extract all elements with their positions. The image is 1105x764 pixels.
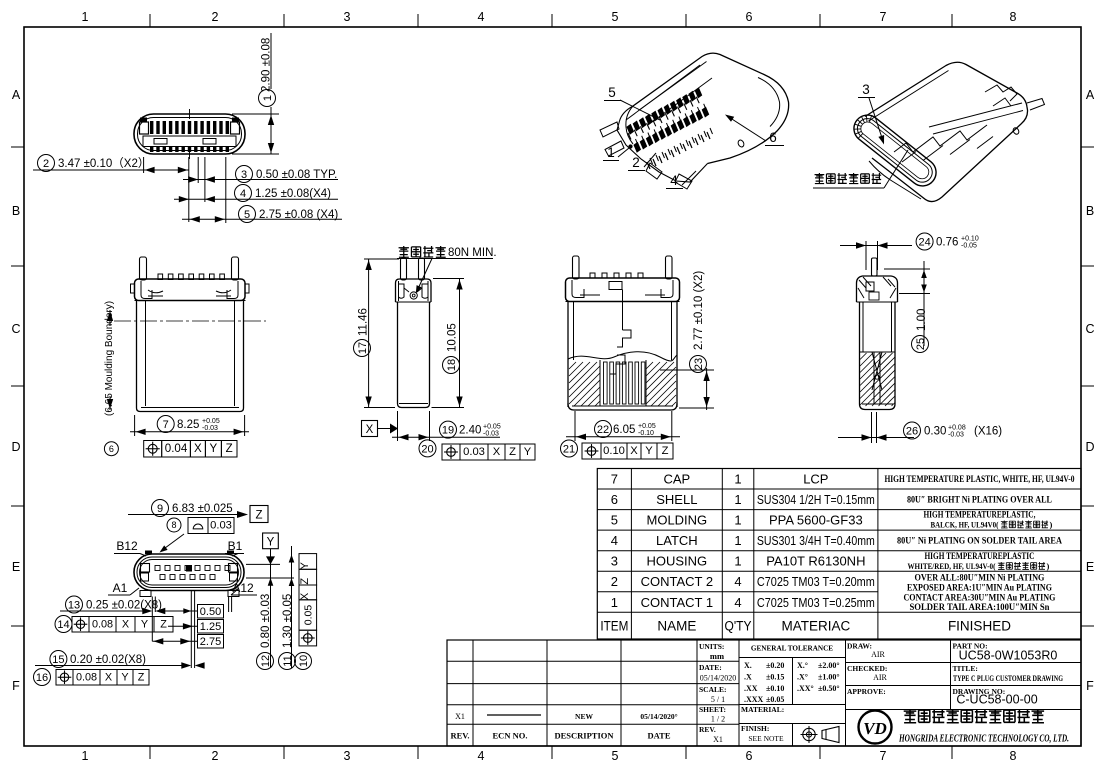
svg-text:2: 2 <box>611 574 618 589</box>
svg-text:Y: Y <box>267 536 275 548</box>
svg-text:±0.10: ±0.10 <box>766 684 784 693</box>
svg-text:UNITS:: UNITS: <box>699 642 724 651</box>
svg-text:X.: X. <box>744 661 752 670</box>
svg-text:C-UC58-00-00: C-UC58-00-00 <box>956 693 1037 707</box>
svg-text:2: 2 <box>212 10 219 24</box>
svg-text:C: C <box>11 322 20 336</box>
svg-text:21: 21 <box>563 443 575 455</box>
svg-text:0.30: 0.30 <box>924 426 946 438</box>
svg-text:1.25: 1.25 <box>200 621 221 633</box>
svg-text:1: 1 <box>611 595 618 610</box>
svg-text:D: D <box>11 440 20 454</box>
svg-text:1: 1 <box>262 95 274 101</box>
svg-text:Y: Y <box>141 618 148 630</box>
svg-text:80N MIN.: 80N MIN. <box>448 247 497 259</box>
svg-text:9: 9 <box>157 503 163 515</box>
svg-text:3: 3 <box>862 82 870 97</box>
svg-text:0.25 ±0.02(X8): 0.25 ±0.02(X8) <box>86 600 162 612</box>
svg-text:0.76: 0.76 <box>936 237 958 249</box>
svg-text:0.08: 0.08 <box>76 671 97 683</box>
svg-text:3: 3 <box>344 749 351 763</box>
svg-text:HIGH TEMPERATUREPLASTIC: HIGH TEMPERATUREPLASTIC <box>924 551 1034 561</box>
svg-text:HIGH TEMPERATUREPLASTIC,: HIGH TEMPERATUREPLASTIC, <box>923 510 1035 520</box>
svg-text:3: 3 <box>611 554 618 569</box>
svg-text:GENERAL TOLERANCE: GENERAL TOLERANCE <box>751 645 833 653</box>
svg-text:22: 22 <box>597 424 609 436</box>
svg-text:CHECKED:: CHECKED: <box>847 664 887 673</box>
svg-text:Y: Y <box>645 445 653 457</box>
svg-text:B1: B1 <box>228 539 243 553</box>
svg-text:10: 10 <box>298 655 310 667</box>
svg-text:mm: mm <box>710 651 724 661</box>
svg-text:ITEM: ITEM <box>600 619 628 634</box>
svg-text:4: 4 <box>478 749 485 763</box>
svg-text:Y: Y <box>121 671 128 683</box>
svg-text:8: 8 <box>1010 749 1017 763</box>
svg-text:Y: Y <box>299 561 311 569</box>
svg-text:SEE NOTE: SEE NOTE <box>748 734 784 743</box>
svg-text:05/14/2020°: 05/14/2020° <box>640 712 677 721</box>
svg-text:7: 7 <box>611 471 618 486</box>
svg-text:HONGRIDA ELECTRONIC TECHNOLOGY: HONGRIDA ELECTRONIC TECHNOLOGY CO, LTD. <box>898 734 1069 745</box>
svg-text:-0.10: -0.10 <box>638 430 654 437</box>
svg-text:HOUSING: HOUSING <box>647 554 708 569</box>
svg-text:Z: Z <box>255 510 262 522</box>
svg-text:BALCK, HF, UL94V0(: BALCK, HF, UL94V0( <box>930 520 998 530</box>
svg-text:F: F <box>1086 679 1094 693</box>
svg-text:DESCRIPTION: DESCRIPTION <box>554 731 614 741</box>
svg-text:8: 8 <box>1010 10 1017 24</box>
svg-text:24: 24 <box>918 236 930 248</box>
svg-text:HIGH TEMPERATURE PLASTIC, WHIT: HIGH TEMPERATURE PLASTIC, WHITE, HF, UL9… <box>884 474 1074 484</box>
svg-text:X: X <box>105 671 112 683</box>
svg-text:NEW: NEW <box>575 712 593 721</box>
svg-text:SCALE:: SCALE: <box>699 685 727 694</box>
svg-text:X: X <box>493 446 501 458</box>
svg-text:±1.00°: ±1.00° <box>818 673 840 682</box>
svg-text:8.25: 8.25 <box>177 419 199 431</box>
svg-text:5: 5 <box>612 749 619 763</box>
svg-text:0.05: 0.05 <box>303 605 315 626</box>
svg-text:19: 19 <box>442 424 454 436</box>
svg-text:SOLDER TAIL AREA:100U″MIN Sn: SOLDER TAIL AREA:100U″MIN Sn <box>909 602 1049 612</box>
svg-text:0.03: 0.03 <box>463 446 485 458</box>
svg-text:+0.08: +0.08 <box>948 424 966 431</box>
svg-text:Y: Y <box>210 443 218 455</box>
svg-text:.XX°: .XX° <box>797 684 814 693</box>
svg-text:X: X <box>366 424 374 436</box>
svg-text:1: 1 <box>607 145 615 160</box>
svg-text:E: E <box>12 560 20 574</box>
svg-text:1: 1 <box>734 533 741 548</box>
svg-text:F: F <box>12 679 20 693</box>
svg-text:.X°: .X° <box>797 673 808 682</box>
svg-text:A12: A12 <box>232 581 254 595</box>
svg-text:SUS304 1/2H T=0.15mm: SUS304 1/2H T=0.15mm <box>757 492 875 507</box>
svg-text:1: 1 <box>734 471 741 486</box>
svg-text:±0.15: ±0.15 <box>766 673 784 682</box>
svg-text:AIR: AIR <box>871 650 885 659</box>
svg-text:4: 4 <box>478 10 485 24</box>
svg-text:WHITE/RED, HF, UL94V-0(: WHITE/RED, HF, UL94V-0( <box>907 561 995 571</box>
svg-text:0.20 ±0.02(X8): 0.20 ±0.02(X8) <box>70 654 146 666</box>
svg-text:1 / 2: 1 / 2 <box>711 715 725 724</box>
svg-text:4: 4 <box>670 173 678 188</box>
svg-text:+0.05: +0.05 <box>638 423 656 430</box>
svg-text:5: 5 <box>612 10 619 24</box>
svg-text:11: 11 <box>282 655 294 666</box>
svg-text:UC58-0W1053R0: UC58-0W1053R0 <box>959 649 1058 663</box>
svg-text:E: E <box>1086 560 1094 574</box>
svg-text:C: C <box>1085 322 1094 336</box>
svg-text:TYPE C PLUG CUSTOMER DRAWING: TYPE C PLUG CUSTOMER DRAWING <box>953 674 1063 683</box>
svg-text:DRAW:: DRAW: <box>847 642 872 651</box>
svg-text:LCP: LCP <box>803 471 828 486</box>
svg-text:12: 12 <box>260 655 272 667</box>
svg-text:7: 7 <box>163 419 169 431</box>
svg-text:CONTACT AREA:30U″MIN Au PLATI: CONTACT AREA:30U″MIN Au PLATING <box>903 593 1055 603</box>
svg-text:17: 17 <box>357 342 369 354</box>
svg-text:1: 1 <box>82 749 89 763</box>
svg-text:MATERIAL:: MATERIAL: <box>741 705 784 714</box>
svg-text:SHEET:: SHEET: <box>699 705 726 714</box>
svg-text:16: 16 <box>36 672 48 684</box>
svg-text:CAP: CAP <box>663 471 690 486</box>
svg-text:1.30 ±0.05: 1.30 ±0.05 <box>282 594 294 648</box>
svg-text:0.04: 0.04 <box>165 443 188 455</box>
svg-text:Z: Z <box>509 446 516 458</box>
svg-text:A: A <box>1086 88 1095 102</box>
svg-text:.XX: .XX <box>744 684 758 693</box>
svg-text:VD: VD <box>863 719 887 738</box>
svg-text:SUS301 3/4H T=0.40mm: SUS301 3/4H T=0.40mm <box>757 533 875 548</box>
svg-text:7: 7 <box>880 10 887 24</box>
svg-text:0.50: 0.50 <box>200 606 221 618</box>
svg-text:B: B <box>1086 204 1094 218</box>
svg-text:13: 13 <box>68 599 80 611</box>
svg-text:TITLE:: TITLE: <box>953 664 978 673</box>
svg-text:C7025 TM03 T=0.20mm: C7025 TM03 T=0.20mm <box>757 574 875 589</box>
svg-text:5: 5 <box>611 513 618 528</box>
svg-text:1.00: 1.00 <box>916 309 928 331</box>
svg-text:Z: Z <box>138 671 145 683</box>
svg-text:6: 6 <box>109 444 114 454</box>
svg-text:05/14/2020: 05/14/2020 <box>700 674 736 683</box>
svg-text:80U″ Ni PLATING ON SOLDER TAIL: 80U″ Ni PLATING ON SOLDER TAIL AREA <box>897 536 1062 546</box>
svg-text:10.05: 10.05 <box>447 323 459 352</box>
svg-text:A: A <box>12 88 21 102</box>
svg-text:6: 6 <box>746 10 753 24</box>
svg-text:20: 20 <box>421 443 433 455</box>
svg-text:Q'TY: Q'TY <box>725 619 752 634</box>
svg-text:X1: X1 <box>713 735 723 744</box>
svg-text:±0.20: ±0.20 <box>766 661 784 670</box>
svg-text:1: 1 <box>82 10 89 24</box>
svg-text:): ) <box>1049 520 1052 530</box>
svg-text:18: 18 <box>446 359 458 371</box>
svg-text:DATE:: DATE: <box>699 663 722 672</box>
svg-text:MATERIAC: MATERIAC <box>781 619 850 634</box>
svg-text:PPA 5600-GF33: PPA 5600-GF33 <box>769 513 863 528</box>
svg-text:FINISHED: FINISHED <box>948 619 1011 634</box>
svg-text:1: 1 <box>734 492 741 507</box>
svg-text:1: 1 <box>734 513 741 528</box>
svg-text:LATCH: LATCH <box>656 533 698 548</box>
svg-text:X: X <box>122 618 129 630</box>
svg-text:X: X <box>194 443 202 455</box>
svg-text:MOLDING: MOLDING <box>647 513 708 528</box>
svg-text:2.90 ±0.08: 2.90 ±0.08 <box>261 38 273 92</box>
svg-text:ECN NO.: ECN NO. <box>493 731 528 741</box>
svg-text:2: 2 <box>632 155 640 170</box>
svg-text:(X16): (X16) <box>974 426 1002 438</box>
svg-text:6: 6 <box>769 130 777 145</box>
svg-text:.X: .X <box>744 673 752 682</box>
svg-text:DATE: DATE <box>648 731 671 741</box>
svg-text:Z: Z <box>299 578 311 585</box>
svg-text:): ) <box>1046 561 1049 571</box>
svg-text:D: D <box>1085 440 1094 454</box>
svg-text:Y: Y <box>524 446 532 458</box>
svg-text:REV.: REV. <box>451 731 470 741</box>
svg-text:B: B <box>12 204 20 218</box>
svg-text:2: 2 <box>212 749 219 763</box>
svg-text:APPROVE:: APPROVE: <box>847 687 886 696</box>
svg-text:0.08: 0.08 <box>92 618 113 630</box>
svg-text:4: 4 <box>734 574 741 589</box>
svg-text:5 / 1: 5 / 1 <box>711 695 725 704</box>
svg-text:2: 2 <box>43 158 49 170</box>
svg-text:3.47 ±0.10（X2）: 3.47 ±0.10（X2） <box>58 157 149 170</box>
svg-text:AIR: AIR <box>873 673 887 682</box>
svg-text:A1: A1 <box>113 581 128 595</box>
svg-text:1.25 ±0.08(X4): 1.25 ±0.08(X4) <box>255 188 331 200</box>
svg-text:0.80 ±0.03: 0.80 ±0.03 <box>260 594 272 648</box>
svg-text:4: 4 <box>734 595 741 610</box>
svg-text:80U″ BRIGHT Ni PLATING OVER AL: 80U″ BRIGHT Ni PLATING OVER ALL <box>907 495 1052 505</box>
svg-text:15: 15 <box>52 654 64 666</box>
svg-text:25: 25 <box>915 338 927 350</box>
svg-text:0.10: 0.10 <box>603 445 625 457</box>
svg-text:6: 6 <box>611 492 618 507</box>
svg-text:6.83 ±0.025: 6.83 ±0.025 <box>172 503 233 515</box>
svg-text:Z: Z <box>662 445 669 457</box>
svg-text:X.°: X.° <box>797 661 808 670</box>
svg-text:23: 23 <box>693 358 705 370</box>
svg-text:Z: Z <box>160 618 167 630</box>
svg-text:±0.50°: ±0.50° <box>818 684 840 693</box>
svg-text:+0.05: +0.05 <box>202 418 220 425</box>
svg-text:6.05: 6.05 <box>613 424 635 436</box>
svg-text:+0.05: +0.05 <box>483 423 501 430</box>
svg-text:14: 14 <box>57 619 69 631</box>
svg-text:C7025 TM03 T=0.25mm: C7025 TM03 T=0.25mm <box>757 595 875 610</box>
svg-text:-0.03: -0.03 <box>948 431 964 438</box>
svg-text:+0.10: +0.10 <box>961 235 979 242</box>
svg-text:PA10T R6130NH: PA10T R6130NH <box>766 554 865 569</box>
svg-text:7: 7 <box>880 749 887 763</box>
svg-text:5: 5 <box>608 85 616 100</box>
svg-text:6: 6 <box>746 749 753 763</box>
svg-text:26: 26 <box>906 425 918 437</box>
svg-text:Z: Z <box>226 443 233 455</box>
svg-text:2.75: 2.75 <box>200 636 221 648</box>
svg-text:B12: B12 <box>116 539 138 553</box>
svg-text:1: 1 <box>734 554 741 569</box>
svg-text:REV.: REV. <box>699 725 716 734</box>
svg-text:SHELL: SHELL <box>656 492 697 507</box>
svg-text:±2.00°: ±2.00° <box>818 661 840 670</box>
svg-text:X: X <box>630 445 638 457</box>
svg-text:X1: X1 <box>455 712 465 721</box>
svg-text:OVER ALL:80U″MIN Ni PLATING: OVER ALL:80U″MIN Ni PLATING <box>914 573 1044 583</box>
svg-text:2.40: 2.40 <box>459 425 481 437</box>
svg-text:2.77 ±0.10 (X2): 2.77 ±0.10 (X2) <box>693 271 705 350</box>
svg-text:CONTACT 1: CONTACT 1 <box>641 595 713 610</box>
svg-text:-0.05: -0.05 <box>961 242 977 249</box>
svg-text:-0.03: -0.03 <box>202 425 218 432</box>
svg-text:EXPOSED AREA:1U″MIN Au PLATING: EXPOSED AREA:1U″MIN Au PLATING <box>907 583 1052 593</box>
svg-text:8: 8 <box>171 520 176 530</box>
svg-text:CONTACT 2: CONTACT 2 <box>641 574 713 589</box>
svg-text:.XXX: .XXX <box>744 695 764 704</box>
svg-text:X: X <box>299 592 311 600</box>
svg-text:±0.05: ±0.05 <box>766 695 784 704</box>
svg-text:4: 4 <box>240 188 246 200</box>
svg-text:FINISH:: FINISH: <box>741 724 769 733</box>
svg-text:11.46: 11.46 <box>358 308 370 336</box>
svg-text:3: 3 <box>344 10 351 24</box>
svg-text:NAME: NAME <box>657 619 696 634</box>
svg-text:-0.03: -0.03 <box>483 430 499 437</box>
svg-text:0.03: 0.03 <box>210 520 232 532</box>
svg-text:4: 4 <box>611 533 618 548</box>
